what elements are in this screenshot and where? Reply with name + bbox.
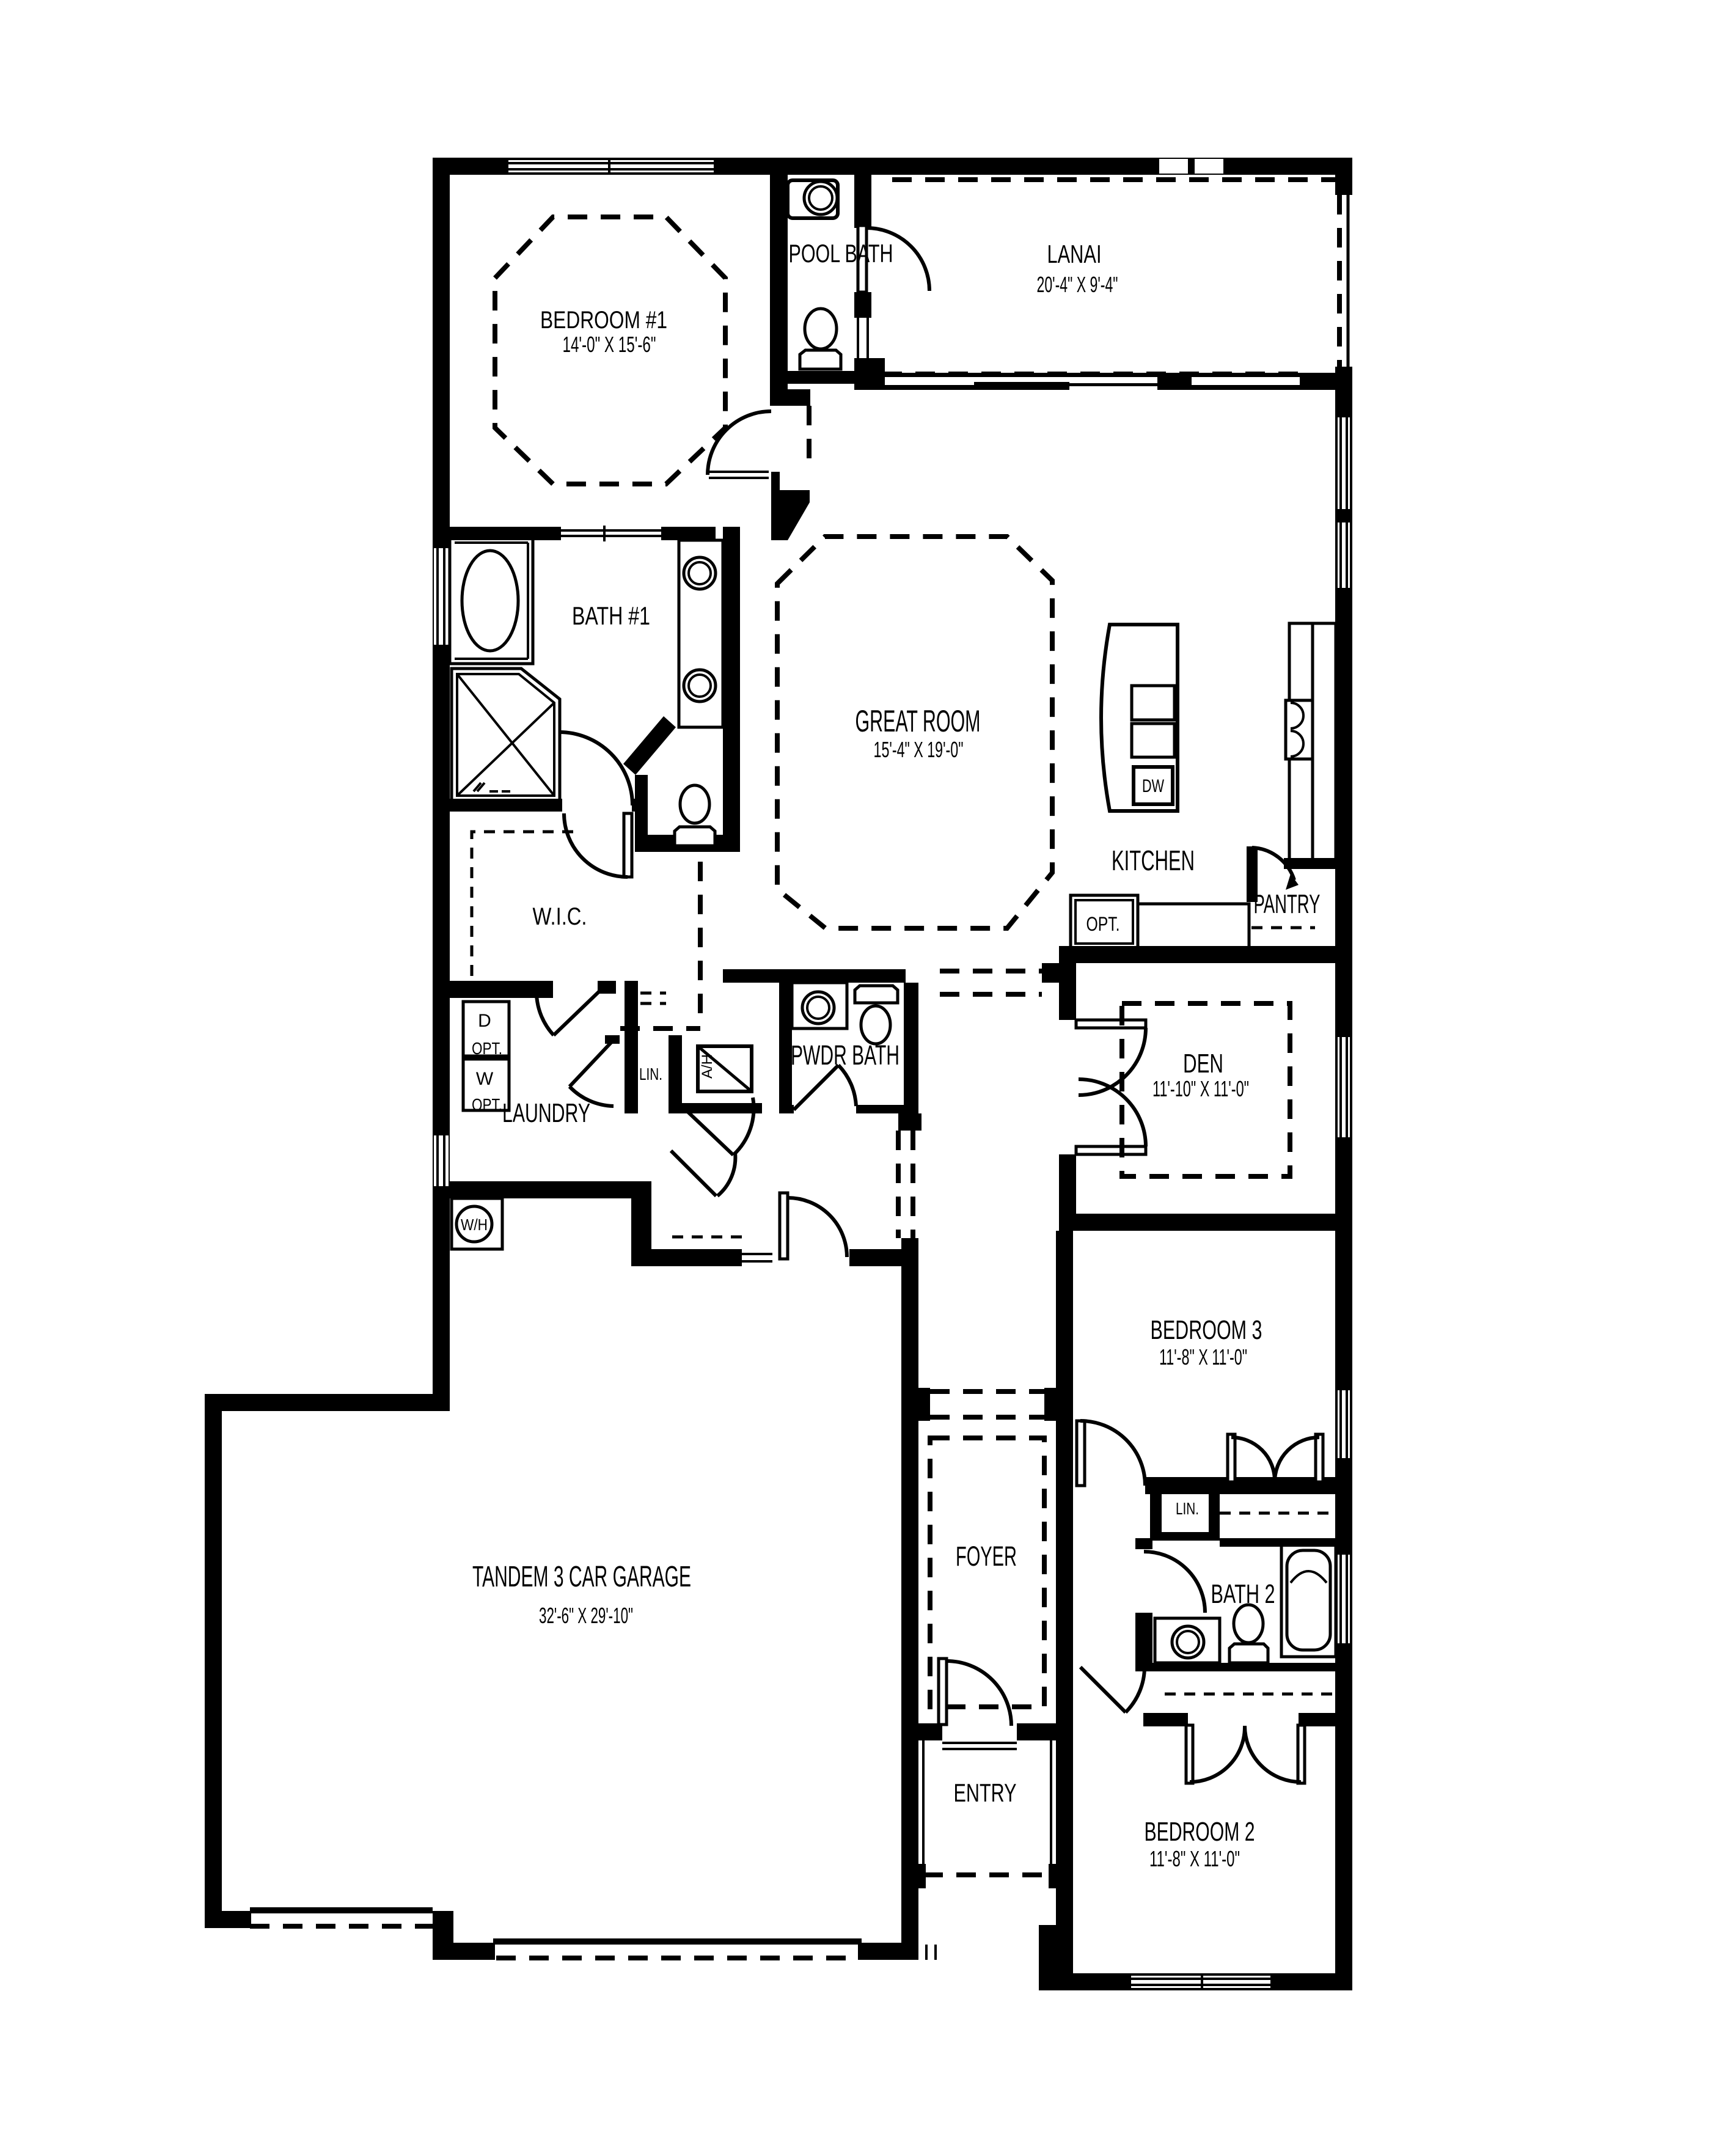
svg-text:11'-10" X 11'-0": 11'-10" X 11'-0": [1152, 1076, 1249, 1101]
svg-text:11'-8" X 11'-0": 11'-8" X 11'-0": [1149, 1846, 1240, 1871]
svg-text:DW: DW: [1142, 776, 1164, 796]
svg-text:W/H: W/H: [461, 1215, 488, 1234]
svg-text:LANAI: LANAI: [1047, 240, 1102, 268]
svg-text:32'-6" X 29'-10": 32'-6" X 29'-10": [539, 1603, 633, 1628]
svg-text:11'-8" X 11'-0": 11'-8" X 11'-0": [1159, 1344, 1247, 1369]
svg-text:OPT.: OPT.: [472, 1095, 502, 1114]
svg-text:W: W: [476, 1069, 494, 1089]
svg-text:OPT.: OPT.: [472, 1039, 502, 1058]
svg-text:TANDEM 3 CAR GARAGE: TANDEM 3 CAR GARAGE: [472, 1561, 691, 1593]
svg-text:OPT.: OPT.: [1086, 913, 1120, 935]
svg-text:LAUNDRY: LAUNDRY: [502, 1098, 590, 1128]
svg-text:BATH #1: BATH #1: [572, 601, 650, 630]
svg-text:15'-4" X 19'-0": 15'-4" X 19'-0": [874, 737, 964, 762]
svg-text:D: D: [478, 1011, 491, 1031]
svg-text:A/H: A/H: [699, 1054, 716, 1079]
svg-text:BEDROOM 2: BEDROOM 2: [1145, 1817, 1255, 1847]
svg-text:LIN.: LIN.: [639, 1065, 662, 1083]
svg-text:LIN.: LIN.: [1176, 1499, 1199, 1518]
svg-text:BEDROOM 3: BEDROOM 3: [1151, 1315, 1262, 1345]
svg-text:DEN: DEN: [1183, 1049, 1223, 1079]
svg-text:BEDROOM #1: BEDROOM #1: [540, 307, 667, 334]
svg-text:14'-0" X 15'-6": 14'-0" X 15'-6": [563, 332, 656, 357]
svg-text:W.I.C.: W.I.C.: [533, 903, 587, 930]
svg-text:PWDR BATH: PWDR BATH: [791, 1039, 899, 1071]
svg-text:ENTRY: ENTRY: [954, 1778, 1017, 1807]
svg-text:KITCHEN: KITCHEN: [1112, 845, 1195, 876]
svg-text:GREAT ROOM: GREAT ROOM: [855, 704, 981, 738]
svg-text:POOL BATH: POOL BATH: [789, 239, 893, 268]
svg-text:BATH 2: BATH 2: [1211, 1579, 1275, 1609]
svg-text:PANTRY: PANTRY: [1254, 889, 1321, 919]
svg-text:20'-4" X 9'-4": 20'-4" X 9'-4": [1037, 272, 1118, 297]
svg-text:FOYER: FOYER: [956, 1541, 1017, 1572]
